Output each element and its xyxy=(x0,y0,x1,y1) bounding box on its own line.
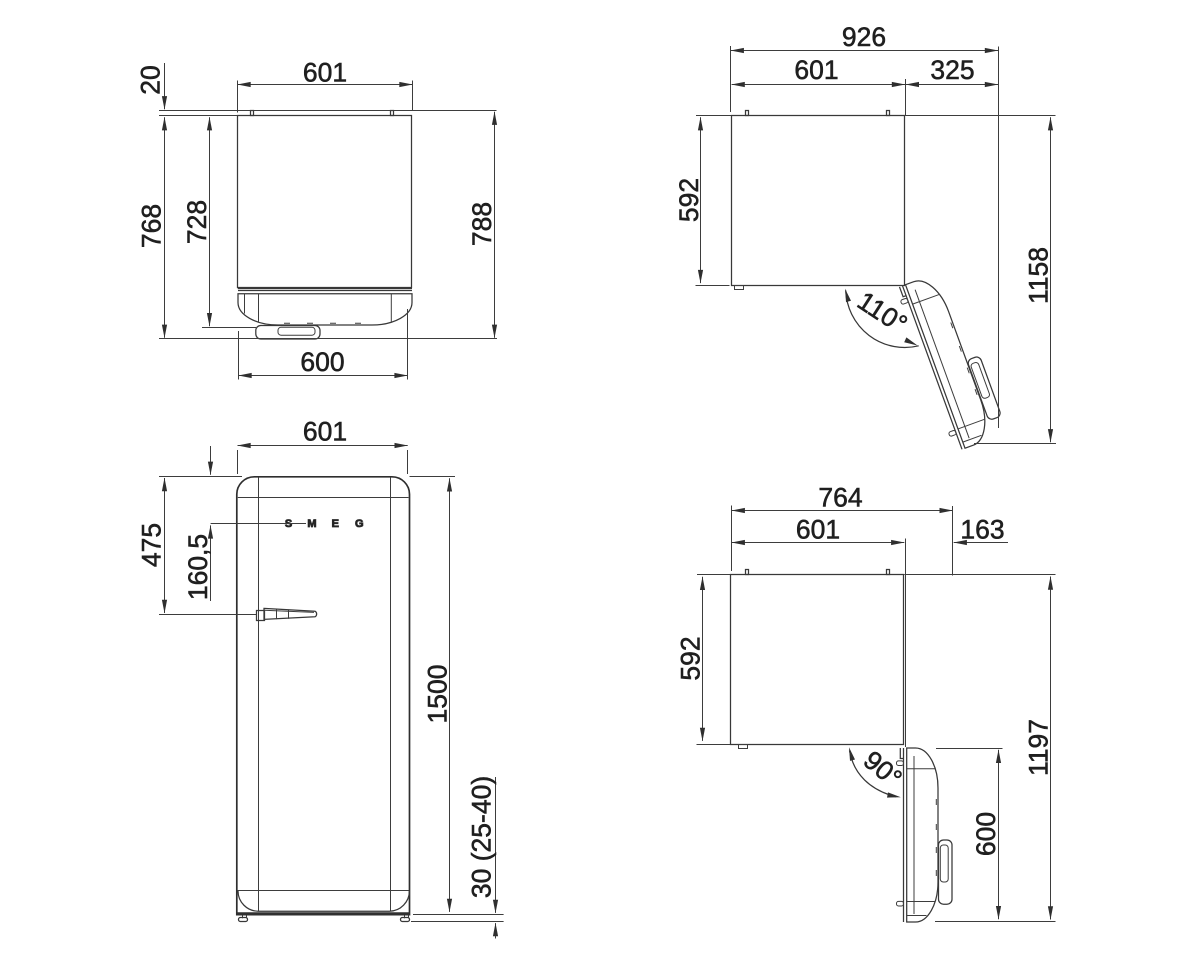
svg-text:1158: 1158 xyxy=(1024,247,1054,304)
svg-text:475: 475 xyxy=(137,523,167,567)
svg-text:788: 788 xyxy=(467,202,497,246)
svg-text:30 (25-40): 30 (25-40) xyxy=(467,776,497,898)
svg-text:M: M xyxy=(307,518,316,530)
svg-text:926: 926 xyxy=(842,22,886,52)
svg-text:728: 728 xyxy=(182,200,212,244)
svg-text:764: 764 xyxy=(818,483,862,513)
svg-text:600: 600 xyxy=(300,347,344,377)
svg-text:E: E xyxy=(332,518,339,530)
svg-text:592: 592 xyxy=(674,178,704,222)
svg-text:601: 601 xyxy=(796,515,840,545)
svg-text:1197: 1197 xyxy=(1024,719,1054,776)
svg-text:601: 601 xyxy=(303,417,347,447)
svg-text:600: 600 xyxy=(971,812,1001,856)
svg-text:768: 768 xyxy=(137,204,167,248)
svg-text:601: 601 xyxy=(794,55,838,85)
svg-text:163: 163 xyxy=(960,515,1004,545)
svg-text:592: 592 xyxy=(676,636,706,680)
svg-text:601: 601 xyxy=(303,58,347,88)
svg-text:G: G xyxy=(355,518,364,530)
svg-text:160,5: 160,5 xyxy=(183,534,213,600)
svg-text:20: 20 xyxy=(136,65,166,94)
svg-text:1500: 1500 xyxy=(423,665,453,724)
svg-text:325: 325 xyxy=(930,55,974,85)
